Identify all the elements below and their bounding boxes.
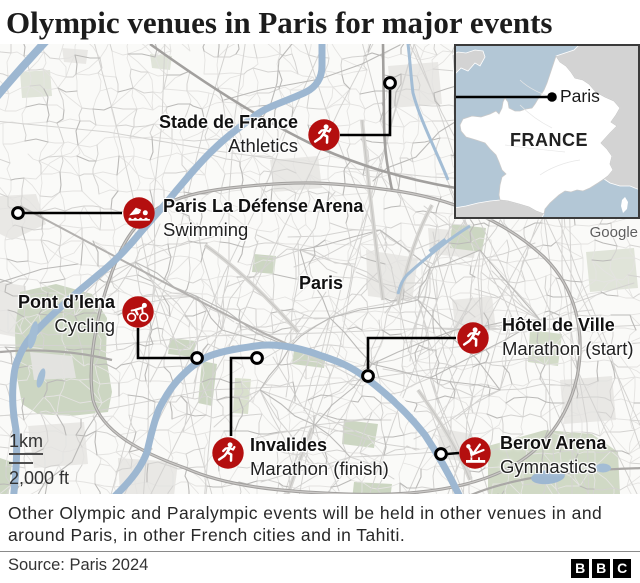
- svg-text:1km: 1km: [9, 431, 43, 451]
- svg-text:FRANCE: FRANCE: [510, 130, 588, 150]
- svg-text:2,000 ft: 2,000 ft: [9, 468, 69, 488]
- svg-text:Paris: Paris: [560, 86, 600, 106]
